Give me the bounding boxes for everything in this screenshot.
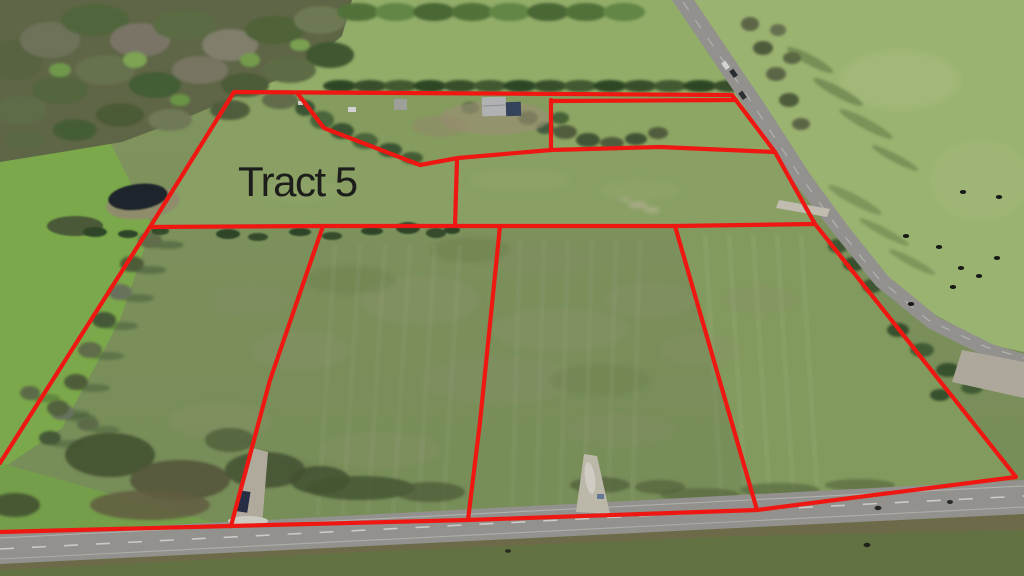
boundary-mid-line [150, 224, 815, 227]
aerial-photo-svg: Tract 5 [0, 0, 1024, 576]
photo-grain [0, 0, 1024, 576]
aerial-tract-photo: Tract 5 [0, 0, 1024, 576]
boundary-north-tract-top [551, 100, 736, 101]
boundary-cutline-connector [455, 159, 457, 226]
tract-label: Tract 5 [238, 158, 357, 205]
